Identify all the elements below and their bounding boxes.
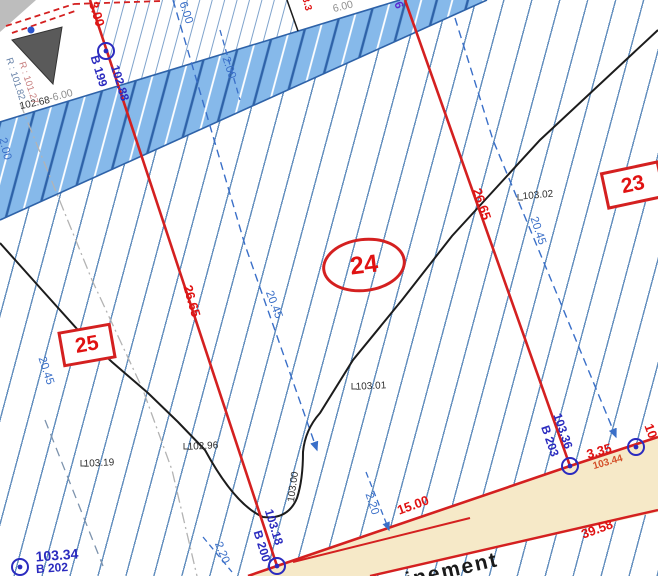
survey-point-b202 [12, 559, 28, 575]
spot-103-19: 103.19 [83, 458, 114, 470]
parcel-24-number: 24 [348, 249, 379, 281]
red-limit-right [405, 0, 570, 466]
cadastral-map: 23 24 25 3.00 26.65 26.65 15.00 3.35 103… [0, 0, 658, 576]
spot-ticks [81, 194, 523, 466]
pt-b202-name: B 202 [36, 561, 69, 575]
parcel-25-number: 25 [73, 331, 100, 359]
parcel-23-number: 23 [619, 171, 647, 199]
spot-103-01: 103.01 [355, 381, 386, 393]
spot-102-96: 102.96 [187, 441, 218, 453]
blue-dot-symbol [28, 27, 35, 34]
dashed-line-bottomleft [45, 420, 103, 566]
